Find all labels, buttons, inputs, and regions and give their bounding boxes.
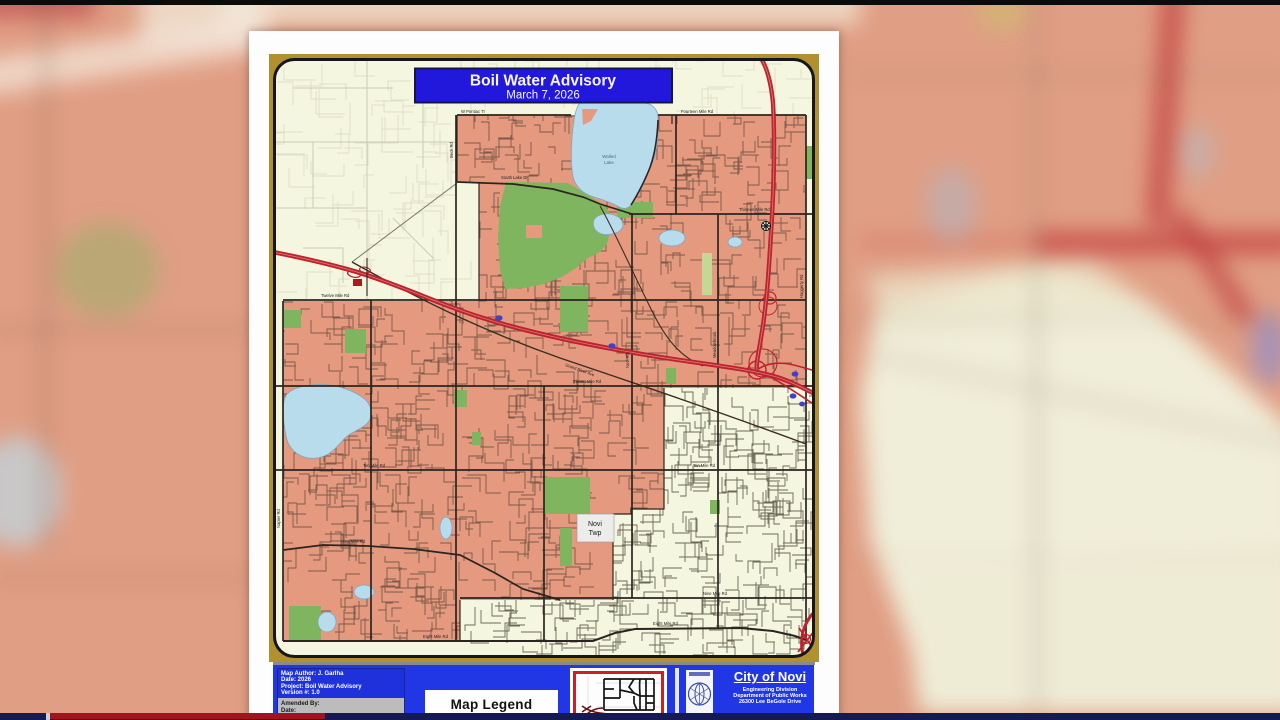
- svg-text:Twp: Twp: [589, 530, 602, 537]
- svg-text:Boil Water Advisory: Boil Water Advisory: [470, 73, 617, 90]
- svg-text:Eleven Mile Rd: Eleven Mile Rd: [573, 379, 602, 384]
- svg-text:Fourteen Mile Rd: Fourteen Mile Rd: [681, 109, 714, 114]
- svg-text:Novi Rd: Novi Rd: [625, 352, 630, 368]
- svg-text:Lake: Lake: [604, 160, 614, 165]
- svg-text:Meadowbrook: Meadowbrook: [712, 331, 717, 358]
- svg-text:Napier Rd: Napier Rd: [276, 508, 281, 528]
- svg-text:South Lake Dr: South Lake Dr: [501, 175, 528, 180]
- svg-text:Haggerty Rd: Haggerty Rd: [799, 274, 804, 298]
- svg-text:Eight Mile Rd: Eight Mile Rd: [653, 621, 679, 626]
- svg-text:W Pontiac Tr: W Pontiac Tr: [461, 109, 486, 114]
- svg-text:Ten Mile Rd: Ten Mile Rd: [693, 463, 716, 468]
- svg-text:Beck Rd: Beck Rd: [449, 142, 454, 158]
- svg-text:Novi: Novi: [588, 521, 602, 528]
- svg-text:Nine Mile Rd: Nine Mile Rd: [703, 591, 728, 596]
- svg-text:Ten Mile Rd: Ten Mile Rd: [363, 463, 386, 468]
- svg-text:Eight Mile Rd: Eight Mile Rd: [423, 634, 449, 639]
- svg-text:Walled: Walled: [602, 154, 616, 159]
- svg-text:March 7, 2026: March 7, 2026: [506, 90, 580, 102]
- svg-text:Twelve Mile Rd: Twelve Mile Rd: [321, 293, 350, 298]
- svg-text:Thirteen Mile Rd: Thirteen Mile Rd: [739, 207, 770, 212]
- svg-text:Nine Mile Rd: Nine Mile Rd: [341, 539, 366, 544]
